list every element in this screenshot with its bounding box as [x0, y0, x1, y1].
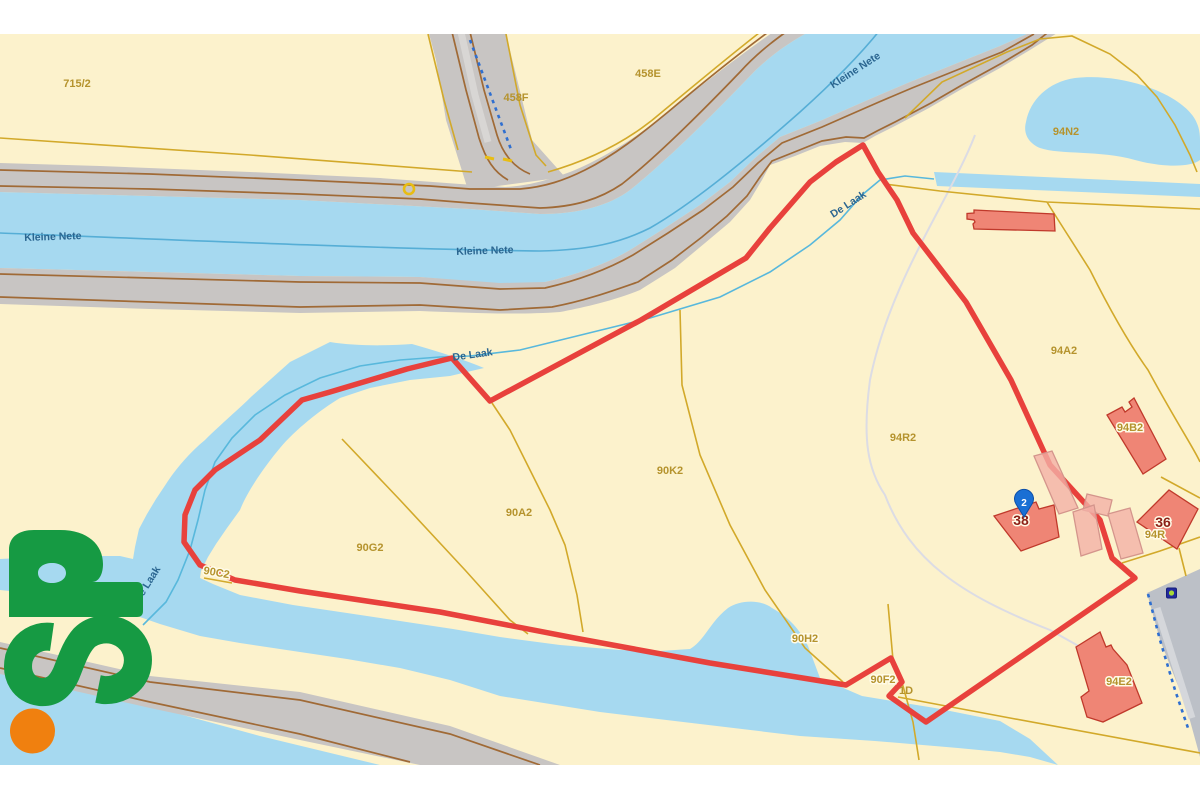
svg-text:1D: 1D: [899, 685, 913, 697]
svg-text:94E2: 94E2: [1106, 676, 1132, 688]
svg-text:94B2: 94B2: [1117, 422, 1143, 434]
svg-text:94R2: 94R2: [890, 432, 916, 444]
svg-text:458E: 458E: [635, 68, 661, 80]
svg-text:90F2: 90F2: [870, 674, 895, 686]
svg-text:38: 38: [1013, 512, 1029, 528]
svg-text:94A2: 94A2: [1051, 345, 1077, 357]
svg-text:36: 36: [1155, 514, 1171, 530]
svg-text:715/2: 715/2: [63, 78, 91, 90]
svg-text:90H2: 90H2: [792, 633, 818, 645]
svg-text:2: 2: [1021, 498, 1027, 509]
svg-text:90A2: 90A2: [506, 507, 532, 519]
svg-text:Kleine Nete: Kleine Nete: [24, 230, 82, 244]
svg-text:Kleine Nete: Kleine Nete: [456, 244, 514, 258]
svg-text:458F: 458F: [503, 92, 528, 104]
svg-text:94R: 94R: [1145, 529, 1165, 541]
svg-text:90G2: 90G2: [357, 542, 384, 554]
svg-text:90K2: 90K2: [657, 465, 683, 477]
svg-text:94N2: 94N2: [1053, 126, 1079, 138]
